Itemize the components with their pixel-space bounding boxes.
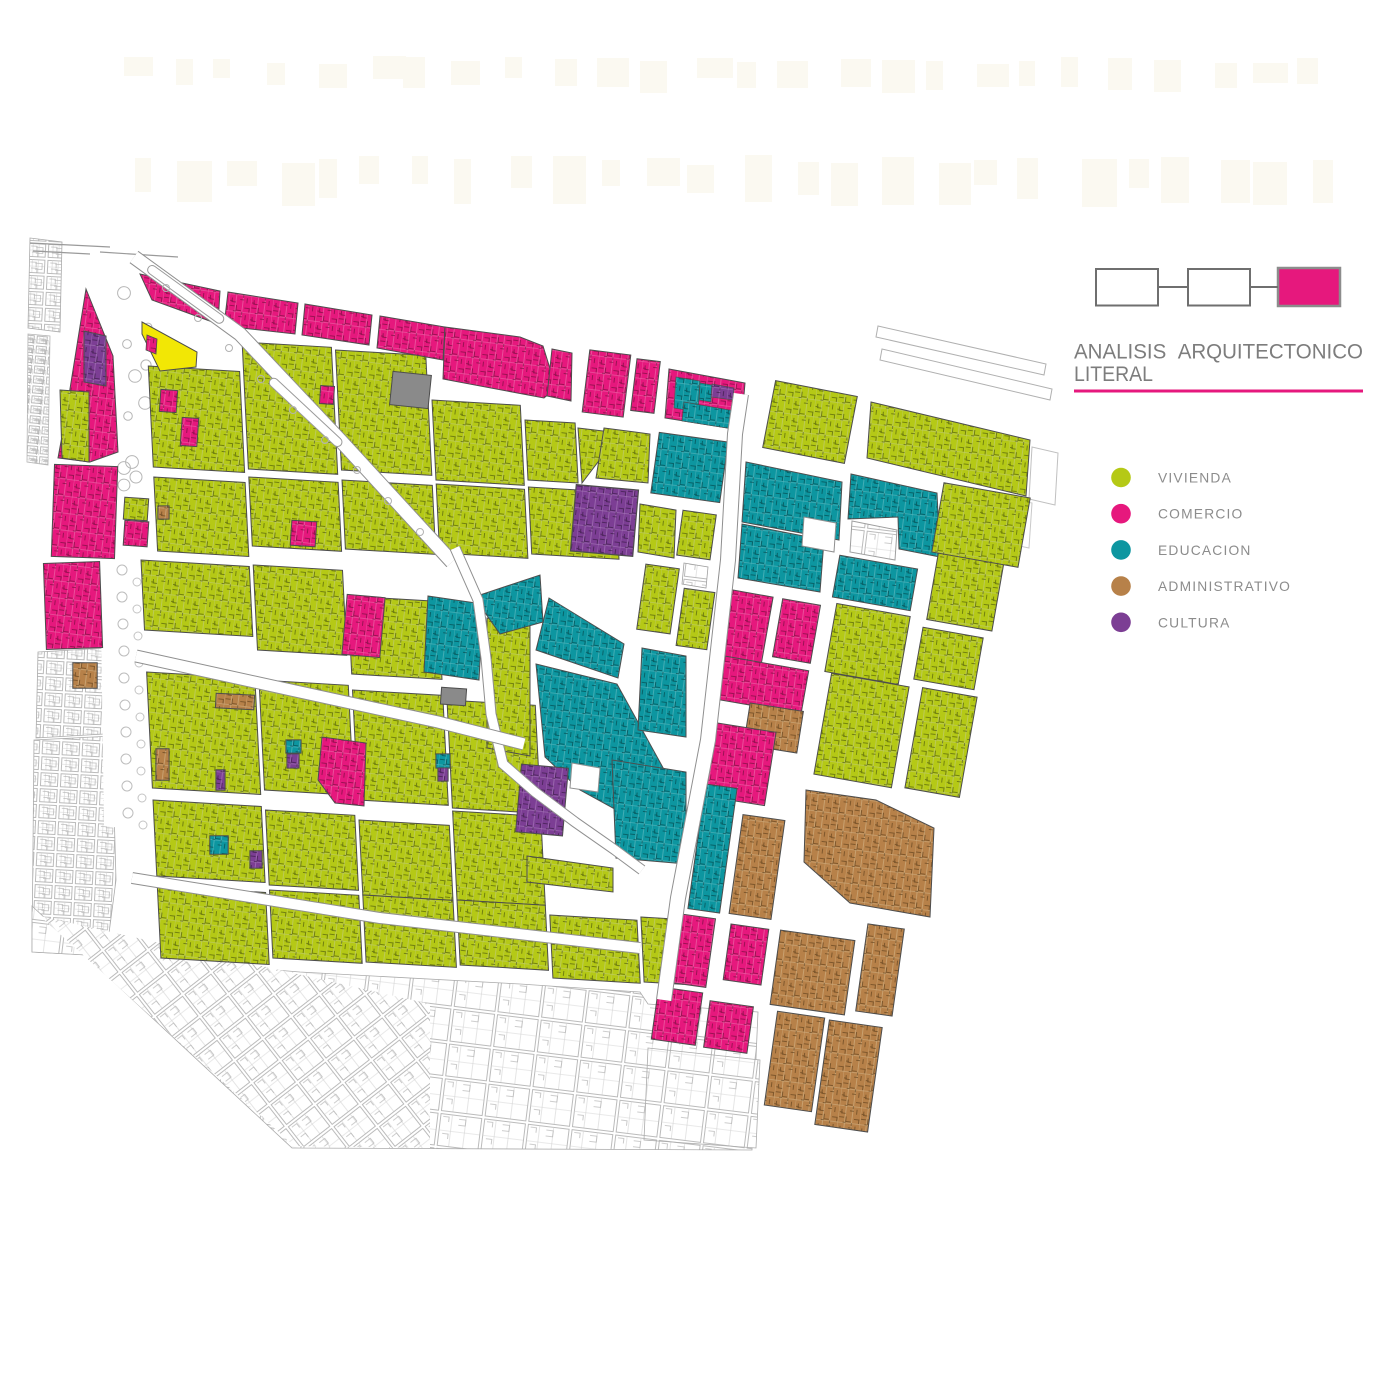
- svg-text:CULTURA: CULTURA: [1158, 615, 1231, 630]
- svg-text:ADMINISTRATIVO: ADMINISTRATIVO: [1158, 579, 1291, 594]
- svg-text:EDUCACION: EDUCACION: [1158, 543, 1252, 558]
- svg-text:ANALISIS ARQUITECTONICO: ANALISIS ARQUITECTONICO: [1074, 341, 1363, 364]
- svg-text:VIVIENDA: VIVIENDA: [1158, 471, 1232, 486]
- svg-text:LITERAL: LITERAL: [1074, 363, 1153, 386]
- svg-text:COMERCIO: COMERCIO: [1158, 507, 1243, 522]
